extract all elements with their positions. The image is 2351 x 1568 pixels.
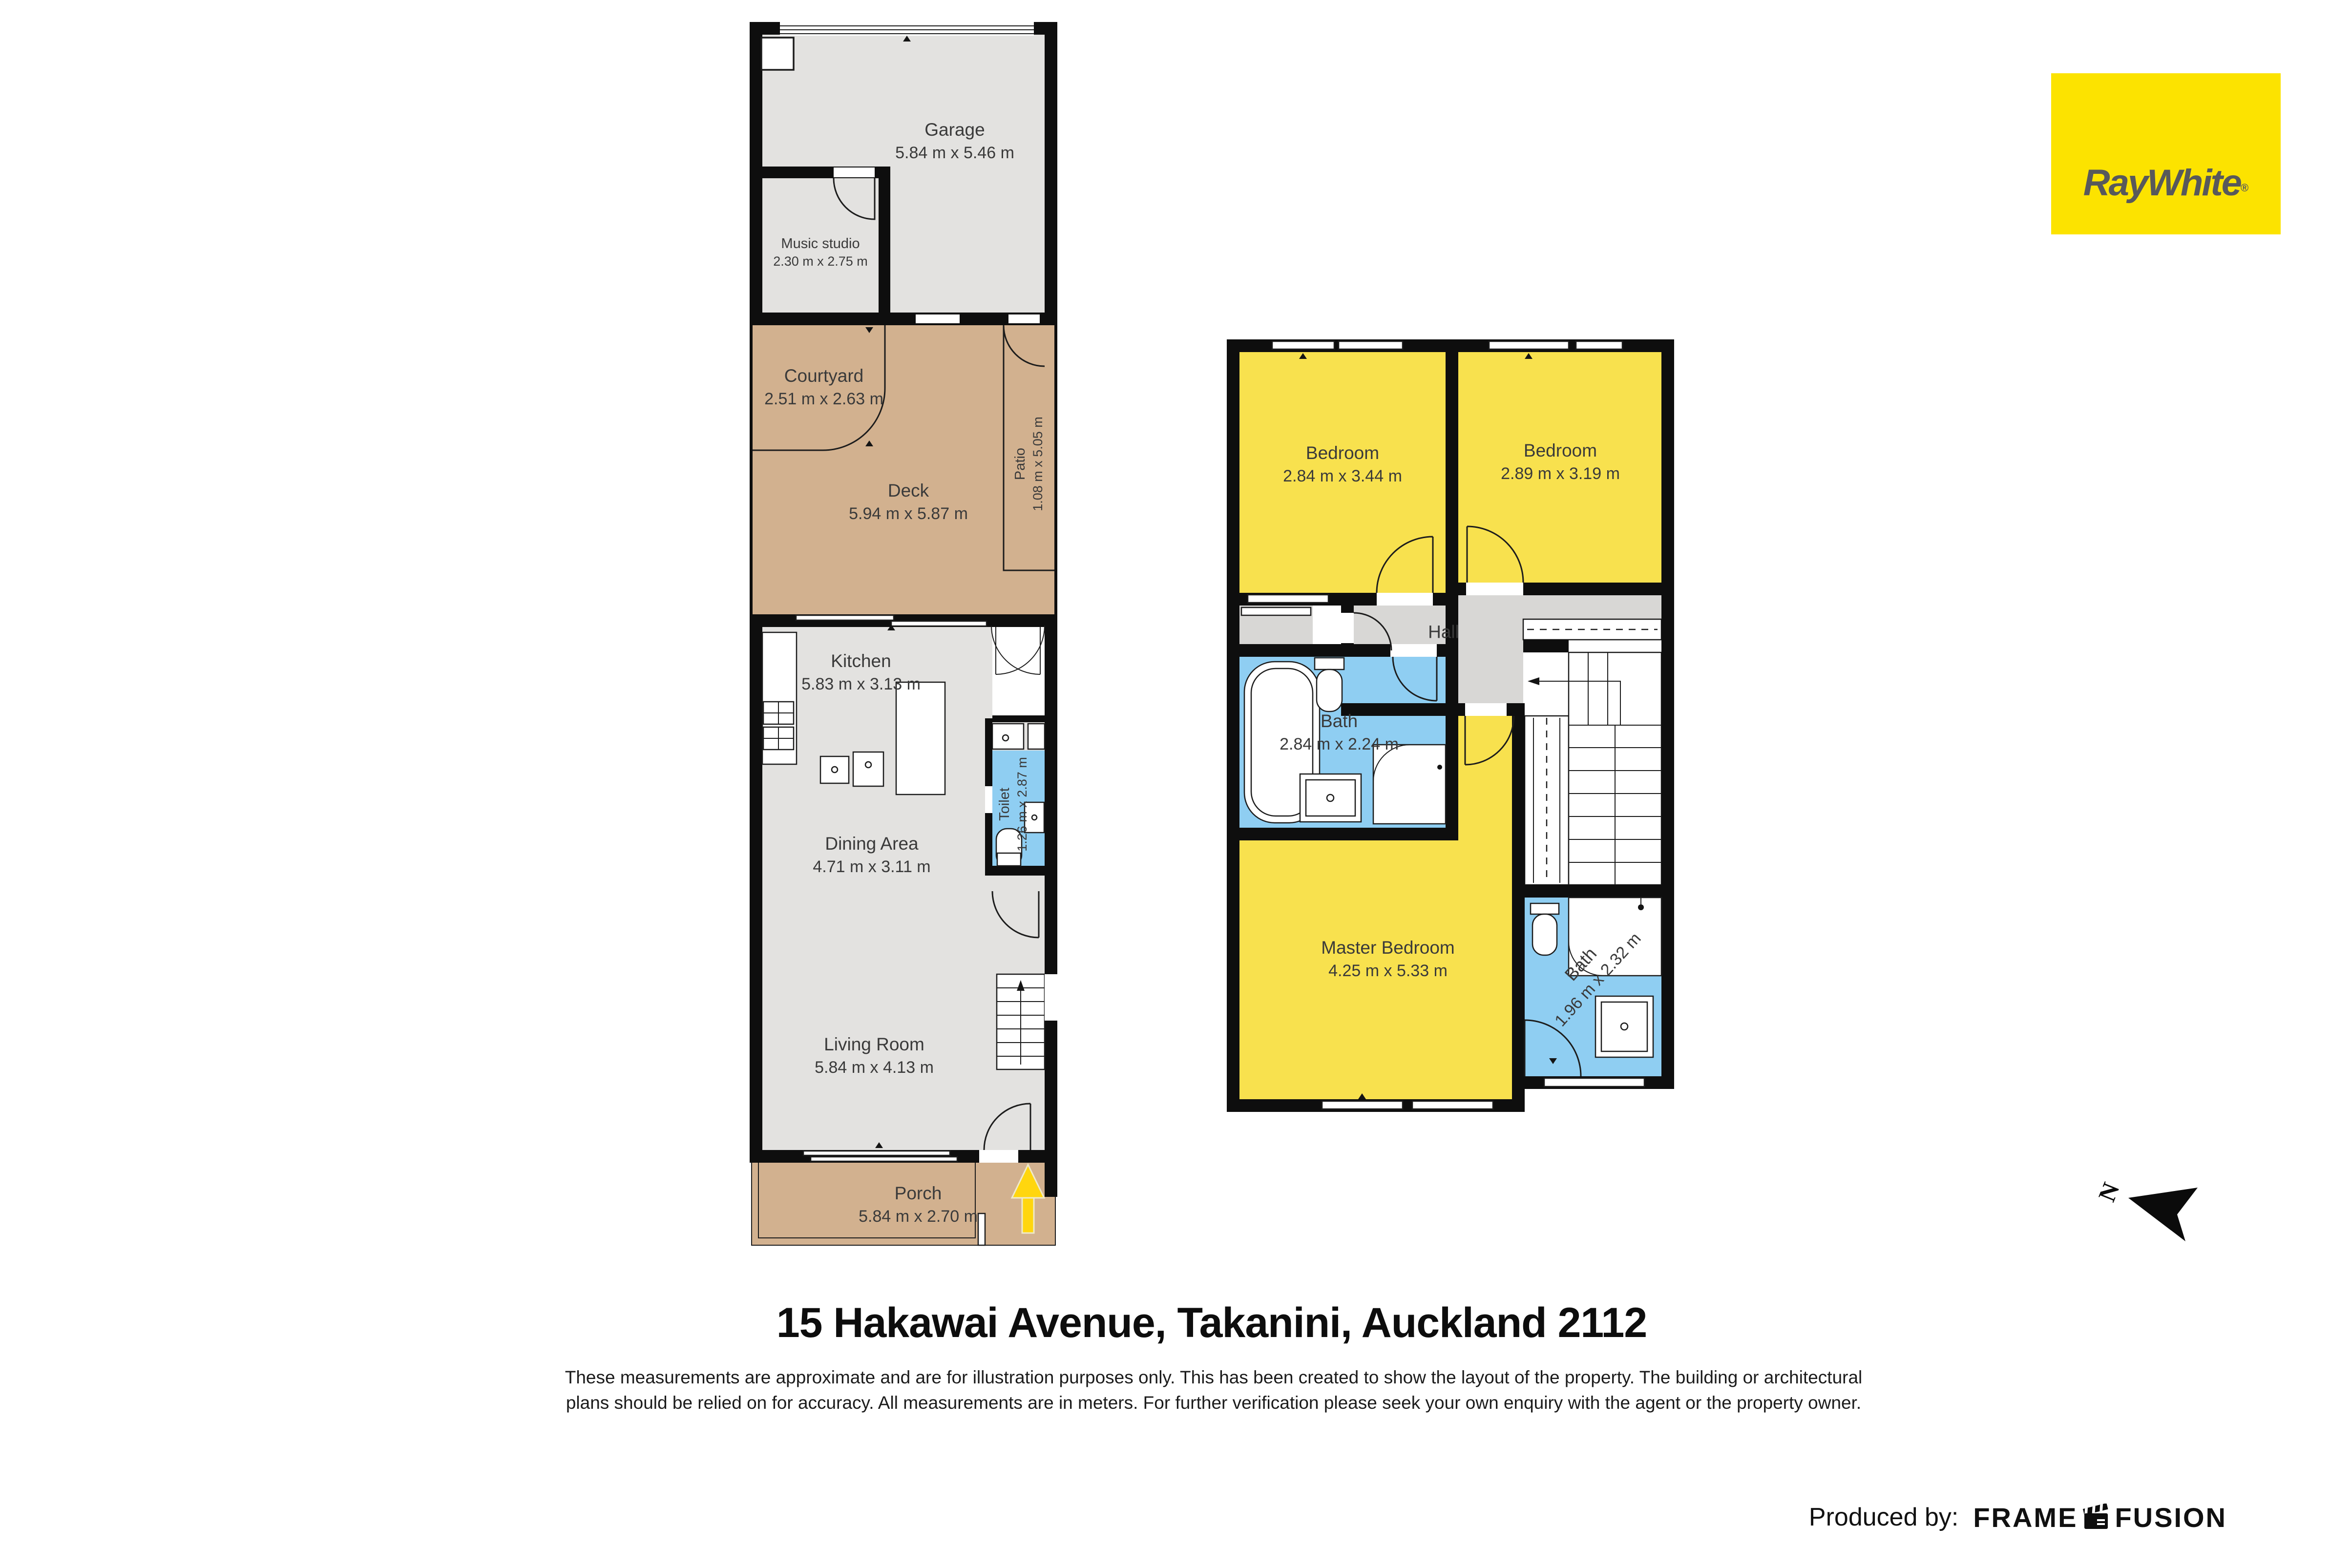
disclaimer-line-1: These measurements are approximate and a… <box>469 1365 1958 1390</box>
bedroom-2-window <box>1489 341 1569 349</box>
room-dims: 2.84 m x 2.24 m <box>1280 733 1399 755</box>
north-label: N <box>2092 1178 2125 1205</box>
room-name: Kitchen <box>801 649 921 673</box>
room-name: Garage <box>895 118 1014 142</box>
kitchen-island <box>896 682 945 794</box>
stair-window <box>1045 974 1057 1021</box>
wardrobe-bedroom2 <box>1523 595 1661 619</box>
upper-floor-plan: Bedroom 2.84 m x 3.44 m Bedroom 2.89 m x… <box>1227 339 1674 1125</box>
room-dims: 5.94 m x 5.87 m <box>849 503 968 525</box>
room-label-bedroom-1: Bedroom 2.84 m x 3.44 m <box>1283 441 1402 487</box>
room-name: Master Bedroom <box>1321 936 1455 960</box>
clapperboard-icon <box>2082 1504 2110 1531</box>
raywhite-logo-text: RayWhite® <box>2051 162 2281 204</box>
room-dims: 5.83 m x 3.13 m <box>801 673 921 695</box>
sink-bath1 <box>1300 774 1361 822</box>
produced-by: Produced by: FRAME FUSION <box>1807 1495 2227 1539</box>
sink-bath2 <box>1595 996 1653 1057</box>
room-label-bedroom-2: Bedroom 2.89 m x 3.19 m <box>1501 439 1620 485</box>
room-name: Living Room <box>815 1033 934 1057</box>
room-label-dining-area: Dining Area 4.71 m x 3.11 m <box>813 832 930 878</box>
toilet-fixture-bath2 <box>1531 903 1559 914</box>
room-dims: 4.71 m x 3.11 m <box>813 856 930 878</box>
room-dims: 2.30 m x 2.75 m <box>773 253 868 271</box>
room-label-master-bedroom: Master Bedroom 4.25 m x 5.33 m <box>1321 936 1455 982</box>
room-dims: 2.51 m x 2.63 m <box>764 388 883 410</box>
room-dims: 5.84 m x 4.13 m <box>815 1057 934 1079</box>
bedroom-1-window <box>1272 341 1334 349</box>
shower-bath1 <box>1373 745 1446 824</box>
room-dims: 2.84 m x 3.44 m <box>1283 465 1402 487</box>
room-name: Bath <box>1280 710 1399 733</box>
room-name: Hall <box>1428 621 1459 645</box>
room-label-courtyard: Courtyard 2.51 m x 2.63 m <box>764 364 883 410</box>
room-label-toilet: Toilet 1.26 m x 2.87 m <box>995 757 1031 852</box>
room-label-music-studio: Music studio 2.30 m x 2.75 m <box>773 234 868 271</box>
kitchen-sink-2 <box>853 752 883 786</box>
registered-mark: ® <box>2241 182 2248 194</box>
porch-step <box>978 1213 985 1245</box>
garage-storage <box>761 38 794 70</box>
room-label-garage: Garage 5.84 m x 5.46 m <box>895 118 1014 164</box>
room-name: Bedroom <box>1501 439 1620 463</box>
kitchen-sink <box>820 756 849 783</box>
room-name: Patio <box>1011 417 1029 511</box>
interior-section <box>750 614 1057 1163</box>
disclaimer-line-2: plans should be relied on for accuracy. … <box>469 1390 1958 1416</box>
room-dims: 1.08 m x 5.05 m <box>1029 417 1047 511</box>
master-window <box>1322 1101 1403 1109</box>
ground-floor-plan: Garage 5.84 m x 5.46 m Music studio 2.30… <box>750 22 1057 1248</box>
room-name: Dining Area <box>813 832 930 856</box>
room-name: Toilet <box>995 757 1014 852</box>
living-window <box>803 1151 950 1155</box>
address-title: 15 Hakawai Avenue, Takanini, Auckland 21… <box>479 1299 1944 1347</box>
floorplan-page: { "branding": { "logo_text": "RayWhite",… <box>0 0 2351 1568</box>
producer-word-fusion: FUSION <box>2115 1502 2227 1533</box>
room-dims: 5.84 m x 5.46 m <box>895 142 1014 164</box>
room-label-deck: Deck 5.94 m x 5.87 m <box>849 479 968 525</box>
room-dims: 4.25 m x 5.33 m <box>1321 960 1455 982</box>
room-dims: 1.26 m x 2.87 m <box>1014 757 1031 852</box>
room-dims: 2.89 m x 3.19 m <box>1501 463 1620 485</box>
room-name: Courtyard <box>764 364 883 388</box>
kitchen-window <box>796 615 894 620</box>
master-bedroom-floor <box>1458 716 1512 840</box>
room-name: Porch <box>859 1182 978 1206</box>
producer-word-frame: FRAME <box>1973 1502 2078 1533</box>
room-label-porch: Porch 5.84 m x 2.70 m <box>859 1182 978 1228</box>
producer-logo: FRAME FUSION <box>1973 1502 2227 1533</box>
room-name: Music studio <box>773 234 868 253</box>
room-name: Deck <box>849 479 968 503</box>
room-label-hall: Hall <box>1428 621 1459 645</box>
north-arrow-icon <box>2123 1182 2206 1248</box>
toilet-fixture-bath1 <box>1315 658 1344 669</box>
room-name: Bedroom <box>1283 441 1402 465</box>
raywhite-logo: RayWhite® <box>2051 73 2281 234</box>
room-dims: 5.84 m x 2.70 m <box>859 1206 978 1228</box>
disclaimer-text: These measurements are approximate and a… <box>469 1365 1958 1416</box>
garage-section <box>750 22 1057 325</box>
room-label-patio: Patio 1.08 m x 5.05 m <box>1011 417 1047 511</box>
bath-2-window <box>1544 1078 1644 1087</box>
produced-by-label: Produced by: <box>1809 1503 1958 1532</box>
room-label-living-room: Living Room 5.84 m x 4.13 m <box>815 1033 934 1079</box>
room-label-bath-1: Bath 2.84 m x 2.24 m <box>1280 710 1399 755</box>
upper-stairs-closets <box>1523 595 1661 885</box>
room-label-kitchen: Kitchen 5.83 m x 3.13 m <box>801 649 921 695</box>
